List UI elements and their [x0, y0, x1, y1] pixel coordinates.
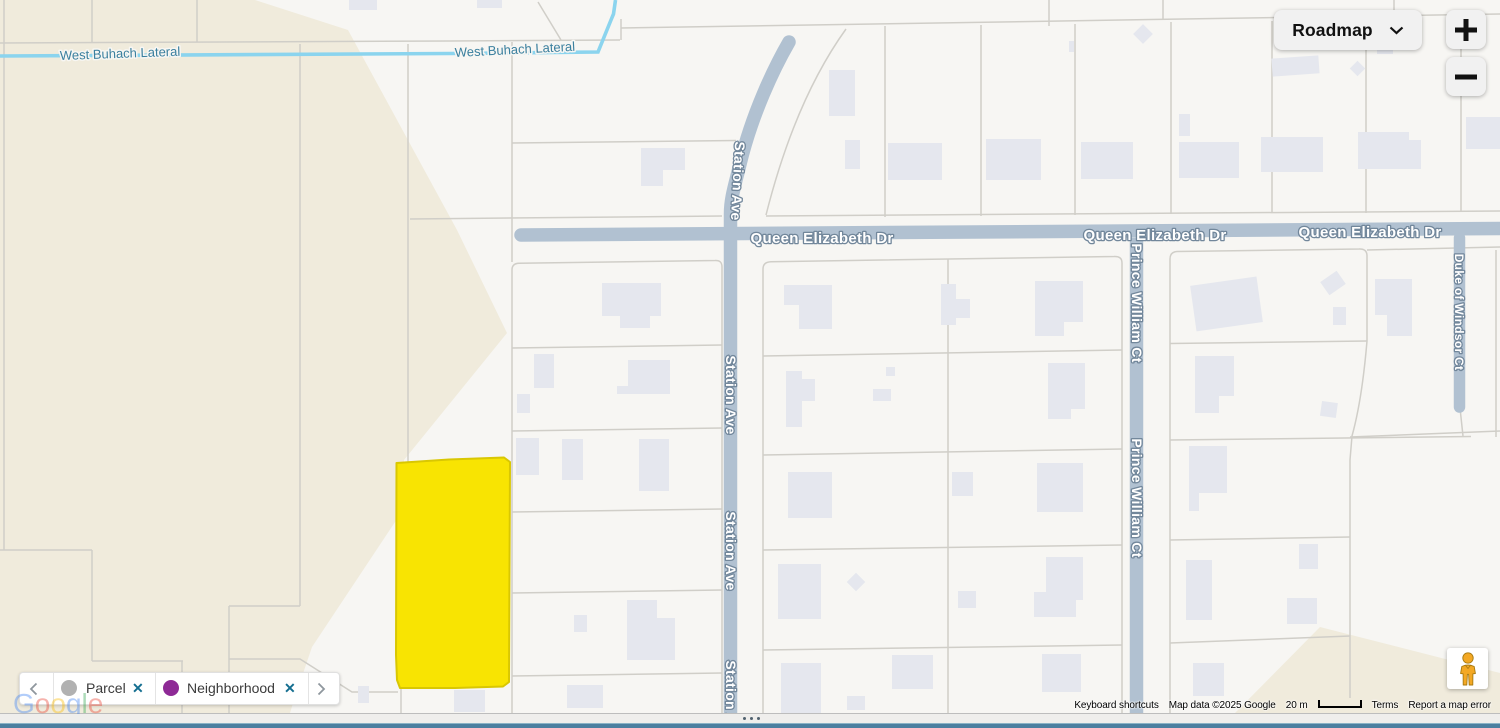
svg-text:Queen Elizabeth Dr: Queen Elizabeth Dr	[1299, 224, 1442, 241]
svg-text:Queen Elizabeth Dr: Queen Elizabeth Dr	[1084, 227, 1227, 244]
svg-text:Prince William Ct: Prince William Ct	[1129, 438, 1145, 557]
svg-text:West Buhach Lateral: West Buhach Lateral	[454, 39, 575, 60]
svg-text:Duke of Windsor Ct: Duke of Windsor Ct	[1452, 254, 1466, 371]
svg-text:Prince William Ct: Prince William Ct	[1129, 243, 1145, 362]
svg-text:Station Ave: Station Ave	[723, 660, 739, 713]
svg-text:Station Ave: Station Ave	[728, 141, 748, 221]
svg-text:Station Ave: Station Ave	[723, 355, 739, 434]
svg-text:Queen Elizabeth Dr: Queen Elizabeth Dr	[751, 230, 894, 247]
svg-text:Station Ave: Station Ave	[723, 511, 739, 590]
